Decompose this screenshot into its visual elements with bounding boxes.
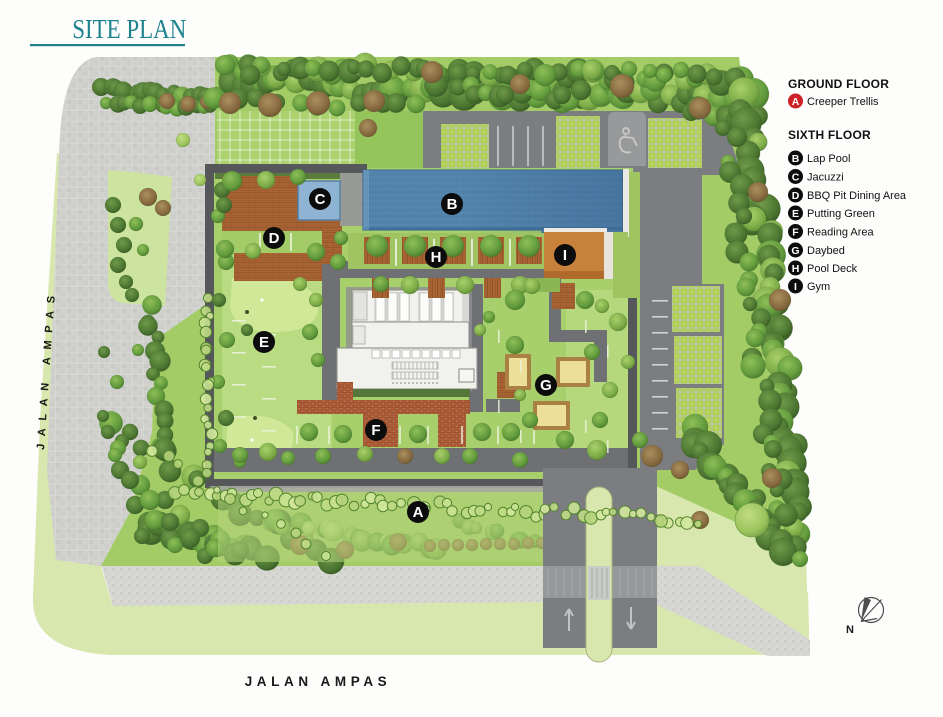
svg-text:E: E <box>792 208 799 220</box>
svg-text:G: G <box>540 377 552 394</box>
svg-text:A: A <box>792 96 800 108</box>
svg-text:Lap Pool: Lap Pool <box>807 153 850 165</box>
svg-text:Jacuzzi: Jacuzzi <box>807 172 844 184</box>
svg-text:I: I <box>794 281 797 293</box>
svg-text:Pool Deck: Pool Deck <box>807 263 858 275</box>
svg-text:SITE PLAN: SITE PLAN <box>72 15 186 44</box>
svg-text:C: C <box>792 171 800 183</box>
svg-text:B: B <box>792 153 800 165</box>
svg-text:H: H <box>431 249 442 266</box>
svg-text:D: D <box>269 230 280 247</box>
svg-text:I: I <box>563 247 567 264</box>
svg-text:Daybed: Daybed <box>807 245 845 257</box>
svg-text:C: C <box>315 191 326 208</box>
svg-text:JALAN AMPAS: JALAN AMPAS <box>245 674 392 689</box>
svg-text:SIXTH FLOOR: SIXTH FLOOR <box>788 128 871 142</box>
svg-text:A: A <box>413 504 424 521</box>
svg-text:Creeper Trellis: Creeper Trellis <box>807 96 879 108</box>
svg-text:G: G <box>791 245 799 257</box>
svg-text:B: B <box>447 196 458 213</box>
svg-text:GROUND FLOOR: GROUND FLOOR <box>788 77 889 91</box>
svg-text:E: E <box>259 334 269 351</box>
svg-text:F: F <box>792 226 799 238</box>
svg-text:Gym: Gym <box>807 281 830 293</box>
svg-text:D: D <box>792 190 800 202</box>
svg-text:BBQ Pit Dining Area: BBQ Pit Dining Area <box>807 190 907 202</box>
svg-text:Reading Area: Reading Area <box>807 227 875 239</box>
svg-text:F: F <box>371 422 380 439</box>
svg-text:H: H <box>792 263 800 275</box>
svg-text:Putting Green: Putting Green <box>807 208 875 220</box>
svg-text:N: N <box>846 624 854 636</box>
